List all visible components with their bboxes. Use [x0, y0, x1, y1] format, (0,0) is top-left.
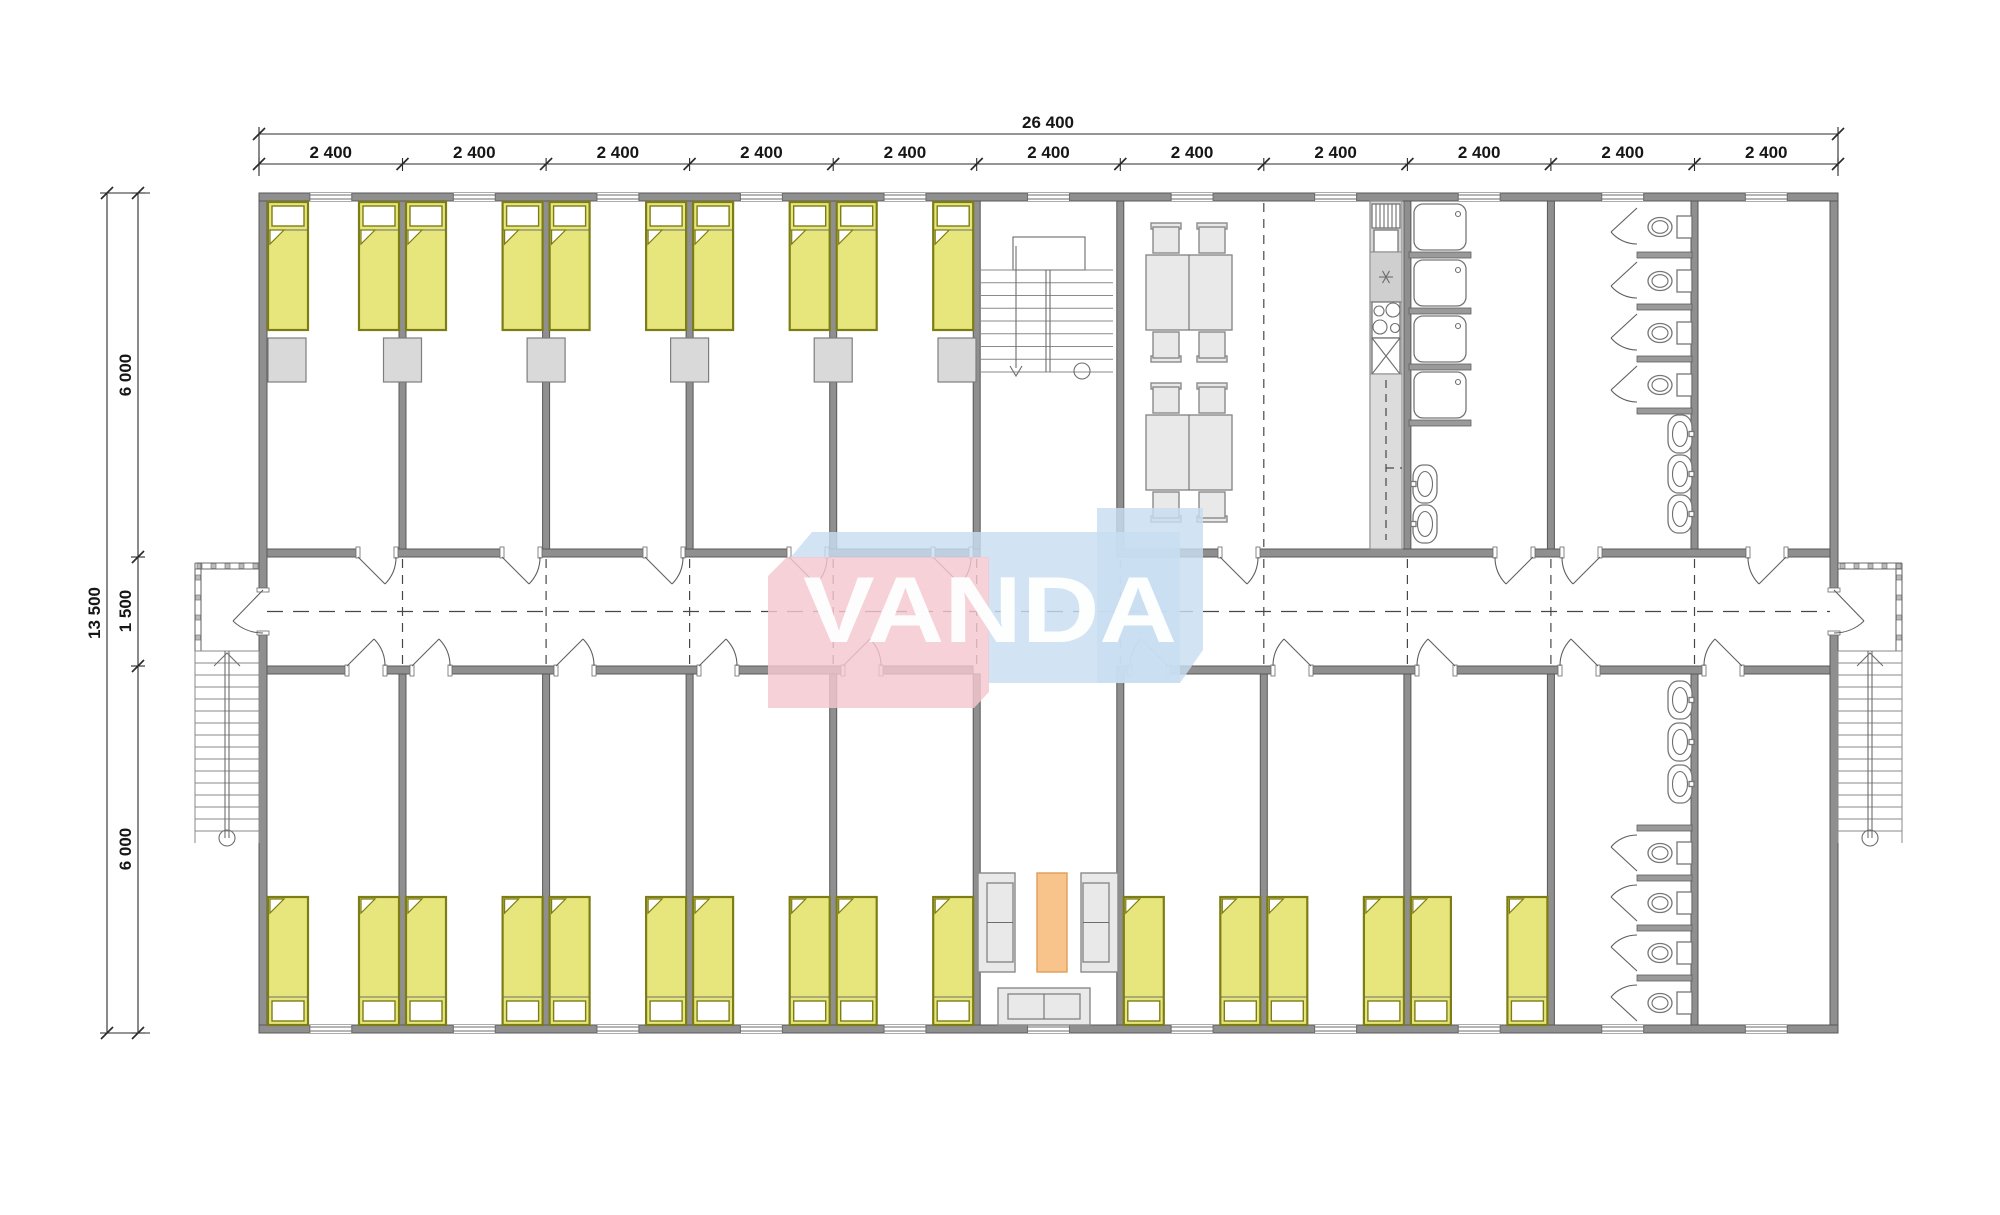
stall-door-arc	[1611, 835, 1637, 847]
wall	[259, 201, 267, 590]
partition-stub	[1637, 825, 1692, 831]
door-jamb	[735, 665, 739, 676]
railing-post	[1897, 575, 1902, 580]
dim-module-label: 2 400	[1171, 143, 1214, 162]
stall-door-arc	[1611, 935, 1637, 947]
corridor-wall	[1311, 666, 1417, 674]
door-jamb	[448, 665, 452, 676]
bed-pillow	[1415, 1001, 1447, 1021]
door-jamb	[1702, 665, 1706, 676]
partition-stub	[1637, 356, 1692, 362]
door-jamb	[681, 547, 685, 558]
door-jamb	[1560, 547, 1564, 558]
window	[453, 193, 495, 201]
window	[1315, 1025, 1357, 1033]
railing-post	[225, 564, 230, 569]
wall	[259, 633, 267, 1025]
stall-door-arc	[1611, 286, 1637, 298]
corridor-wall	[1598, 666, 1704, 674]
chair	[1153, 387, 1179, 413]
locker	[814, 338, 852, 382]
wall	[1830, 633, 1838, 1025]
door-leaf	[1428, 639, 1455, 666]
dim-bottom-band-label: 6 000	[116, 828, 135, 871]
door-jamb	[592, 665, 596, 676]
corridor-wall	[1258, 549, 1495, 557]
railing-post	[196, 615, 201, 620]
window	[884, 1025, 926, 1033]
door-leaf	[1573, 557, 1600, 584]
dim-module-label: 2 400	[309, 143, 352, 162]
door-swing-arc	[672, 557, 683, 584]
door-jamb	[787, 547, 791, 558]
door-jamb	[500, 547, 504, 558]
window	[1602, 1025, 1644, 1033]
door-jamb	[697, 665, 701, 676]
basin-tap	[1689, 698, 1694, 703]
toilet-tank	[1677, 216, 1692, 238]
vanda-watermark: VANDA	[768, 508, 1203, 708]
basin-tap	[1689, 472, 1694, 477]
bed-pillow	[1128, 1001, 1160, 1021]
door-jamb	[1453, 665, 1457, 676]
stair-break-circle	[1074, 363, 1090, 379]
door-swing-arc	[1247, 557, 1258, 584]
dim-module-label: 2 400	[1027, 143, 1070, 162]
railing-post	[239, 564, 244, 569]
partition-stub	[1637, 975, 1692, 981]
door-swing-arc	[1748, 557, 1759, 584]
locker	[938, 338, 976, 382]
bed-pillow	[410, 1001, 442, 1021]
stall-door-arc	[1611, 338, 1637, 350]
door-swing-arc	[1562, 557, 1573, 584]
partition-stub	[1637, 875, 1692, 881]
corridor-wall	[267, 666, 347, 674]
dim-module-label: 2 400	[1601, 143, 1644, 162]
kitchen-sink-unit	[1374, 230, 1398, 252]
bed-pillow	[1224, 1001, 1256, 1021]
shower-tray	[1414, 372, 1466, 418]
railing-post	[1897, 595, 1902, 600]
stall-door-leaf	[1611, 366, 1637, 390]
stall-door-leaf	[1611, 262, 1637, 286]
door-swing-arc	[1704, 639, 1715, 666]
stair-landing	[1013, 237, 1085, 270]
basin-tap	[1411, 482, 1416, 487]
door-jamb	[554, 665, 558, 676]
door-jamb	[1784, 547, 1788, 558]
door-leaf	[358, 557, 385, 584]
partition-stub	[1637, 252, 1692, 258]
stall-door-arc	[1611, 390, 1637, 402]
bed-pillow	[363, 1001, 395, 1021]
locker	[268, 338, 306, 382]
exterior-door-leaf	[1834, 590, 1864, 621]
railing-post	[1896, 564, 1901, 569]
corridor-wall	[1742, 666, 1830, 674]
chair	[1199, 332, 1225, 358]
door-jamb	[1218, 547, 1222, 558]
door-swing-arc	[439, 639, 450, 666]
window	[597, 193, 639, 201]
toilet-tank	[1677, 374, 1692, 396]
door-jamb	[410, 665, 414, 676]
dim-module-label: 2 400	[884, 143, 927, 162]
stair-break-circle	[219, 830, 235, 846]
stall-door-leaf	[1611, 947, 1637, 971]
railing-post	[1897, 635, 1902, 640]
corridor-wall	[1533, 549, 1562, 557]
stair-break-circle	[1862, 830, 1878, 846]
partition-stub	[1409, 308, 1471, 314]
door-swing-arc	[1273, 639, 1284, 666]
door-jamb	[1493, 547, 1497, 558]
partition-stub	[1637, 925, 1692, 931]
toilet-tank	[1677, 892, 1692, 914]
door-swing-arc	[1495, 557, 1506, 584]
bed-pillow	[937, 206, 969, 226]
basin-tap	[1689, 432, 1694, 437]
bed-pillow	[697, 1001, 729, 1021]
dim-top-band-label: 6 000	[116, 354, 135, 397]
corridor-wall	[683, 549, 789, 557]
railing-post	[196, 595, 201, 600]
door-swing-arc	[1560, 639, 1571, 666]
dim-module-label: 2 400	[1458, 143, 1501, 162]
locker	[527, 338, 565, 382]
door-jamb	[1598, 547, 1602, 558]
door-leaf	[502, 557, 529, 584]
corridor-wall	[1455, 666, 1560, 674]
bed-pillow	[272, 206, 304, 226]
railing-post	[196, 635, 201, 640]
window	[1315, 193, 1357, 201]
lounge-rug	[1037, 873, 1067, 972]
stall-door-arc	[1611, 985, 1637, 997]
corridor-wall	[385, 666, 412, 674]
basin-tap	[1689, 782, 1694, 787]
door-leaf	[556, 639, 583, 666]
bed-pillow	[272, 1001, 304, 1021]
window	[1745, 193, 1787, 201]
window	[884, 193, 926, 201]
door-leaf	[1220, 557, 1247, 584]
basin-tap	[1689, 512, 1694, 517]
railing-post	[253, 564, 258, 569]
stall-door-leaf	[1611, 847, 1637, 871]
basin-tap	[1689, 740, 1694, 745]
dim-module-label: 2 400	[1314, 143, 1357, 162]
corridor-wall	[450, 666, 556, 674]
window	[1458, 1025, 1500, 1033]
door-jamb	[356, 547, 360, 558]
window	[310, 193, 352, 201]
corridor-wall	[1600, 549, 1748, 557]
toilet-tank	[1677, 842, 1692, 864]
dim-module-label: 2 400	[1745, 143, 1788, 162]
window	[1028, 1025, 1070, 1033]
railing-post	[211, 564, 216, 569]
locker	[671, 338, 709, 382]
exterior-door-leaf	[233, 590, 263, 621]
bed-pillow	[794, 1001, 826, 1021]
bed-pillow	[794, 206, 826, 226]
corridor-wall	[540, 549, 645, 557]
bed-pillow	[650, 1001, 682, 1021]
door-leaf	[645, 557, 672, 584]
bed-pillow	[1511, 1001, 1543, 1021]
watermark-logo-text: VANDA	[803, 557, 1177, 662]
bed-pillow	[937, 1001, 969, 1021]
door-jamb	[1596, 665, 1600, 676]
door-swing-arc	[374, 639, 385, 666]
window	[1602, 193, 1644, 201]
dim-total-width-label: 26 400	[1022, 113, 1074, 132]
partition-stub	[1409, 364, 1471, 370]
door-swing-arc	[385, 557, 396, 584]
stall-door-leaf	[1611, 314, 1637, 338]
door-leaf	[412, 639, 439, 666]
railing-post	[1882, 564, 1887, 569]
bed-pillow	[697, 206, 729, 226]
stall-door-arc	[1611, 232, 1637, 244]
basin-tap	[1411, 522, 1416, 527]
chair	[1153, 227, 1179, 253]
shower-tray	[1414, 204, 1466, 250]
window	[1171, 193, 1213, 201]
door-jamb	[1746, 547, 1750, 558]
railing-post	[196, 575, 201, 580]
window	[1458, 193, 1500, 201]
door-jamb	[345, 665, 349, 676]
dim-module-label: 2 400	[740, 143, 783, 162]
railing-post	[1840, 564, 1845, 569]
bed-pillow	[410, 206, 442, 226]
door-jamb	[383, 665, 387, 676]
bed-pillow	[554, 206, 586, 226]
dim-module-label: 2 400	[453, 143, 496, 162]
chair	[1153, 332, 1179, 358]
toilet-tank	[1677, 992, 1692, 1014]
stall-door-leaf	[1611, 897, 1637, 921]
corridor-wall	[267, 549, 358, 557]
bed-pillow	[1271, 1001, 1303, 1021]
window	[597, 1025, 639, 1033]
bed-pillow	[507, 1001, 539, 1021]
bed-pillow	[841, 206, 873, 226]
bed-pillow	[554, 1001, 586, 1021]
wall	[1830, 201, 1838, 590]
stair-up-arrow	[214, 653, 240, 666]
window	[1028, 193, 1070, 201]
door-jamb	[1415, 665, 1419, 676]
door-jamb	[394, 547, 398, 558]
partition-stub	[1637, 304, 1692, 310]
door-jamb	[1309, 665, 1313, 676]
stair-up-arrow	[1857, 653, 1883, 666]
door-leaf	[1571, 639, 1598, 666]
railing-post	[1868, 564, 1873, 569]
window	[310, 1025, 352, 1033]
door-leaf	[1759, 557, 1786, 584]
door-jamb	[1558, 665, 1562, 676]
wall	[1547, 201, 1554, 549]
corridor-wall	[396, 549, 502, 557]
partition-stub	[1409, 252, 1471, 258]
door-leaf	[699, 639, 726, 666]
door-swing-arc	[726, 639, 737, 666]
floor-plan-drawing: VANDA 26 400 13 500 6 000 1 500 6 000 2 …	[0, 0, 2000, 1215]
bed-pillow	[1368, 1001, 1400, 1021]
door-leaf	[1715, 639, 1742, 666]
door-swing-arc	[583, 639, 594, 666]
bed-pillow	[507, 206, 539, 226]
railing-post	[1854, 564, 1859, 569]
toilet-tank	[1677, 270, 1692, 292]
chair	[1199, 387, 1225, 413]
toilet-tank	[1677, 942, 1692, 964]
wall	[1117, 201, 1124, 549]
door-swing-arc	[529, 557, 540, 584]
bed-pillow	[841, 1001, 873, 1021]
door-jamb	[643, 547, 647, 558]
window	[1745, 1025, 1787, 1033]
shower-tray	[1414, 316, 1466, 362]
door-leaf	[1506, 557, 1533, 584]
stall-door-leaf	[1611, 997, 1637, 1021]
door-jamb	[538, 547, 542, 558]
chair	[1199, 227, 1225, 253]
stall-door-leaf	[1611, 208, 1637, 232]
dim-total-height-label: 13 500	[85, 587, 104, 639]
bed-pillow	[650, 206, 682, 226]
stall-door-arc	[1611, 885, 1637, 897]
dim-corridor-label: 1 500	[116, 590, 135, 633]
corridor-wall	[594, 666, 699, 674]
door-jamb	[1740, 665, 1744, 676]
door-jamb	[1271, 665, 1275, 676]
door-jamb	[1531, 547, 1535, 558]
locker	[384, 338, 422, 382]
dim-module-label: 2 400	[597, 143, 640, 162]
bed-pillow	[363, 206, 395, 226]
door-leaf	[1284, 639, 1311, 666]
shower-tray	[1414, 260, 1466, 306]
railing-post	[1897, 615, 1902, 620]
door-jamb	[1256, 547, 1260, 558]
window	[453, 1025, 495, 1033]
corridor-wall	[1786, 549, 1830, 557]
toilet-tank	[1677, 322, 1692, 344]
floor-plan-page: VANDA 26 400 13 500 6 000 1 500 6 000 2 …	[0, 0, 2000, 1215]
partition-stub	[1637, 408, 1692, 414]
door-leaf	[347, 639, 374, 666]
window	[740, 193, 782, 201]
door-swing-arc	[1417, 639, 1428, 666]
window	[740, 1025, 782, 1033]
window	[1171, 1025, 1213, 1033]
partition-stub	[1409, 420, 1471, 426]
